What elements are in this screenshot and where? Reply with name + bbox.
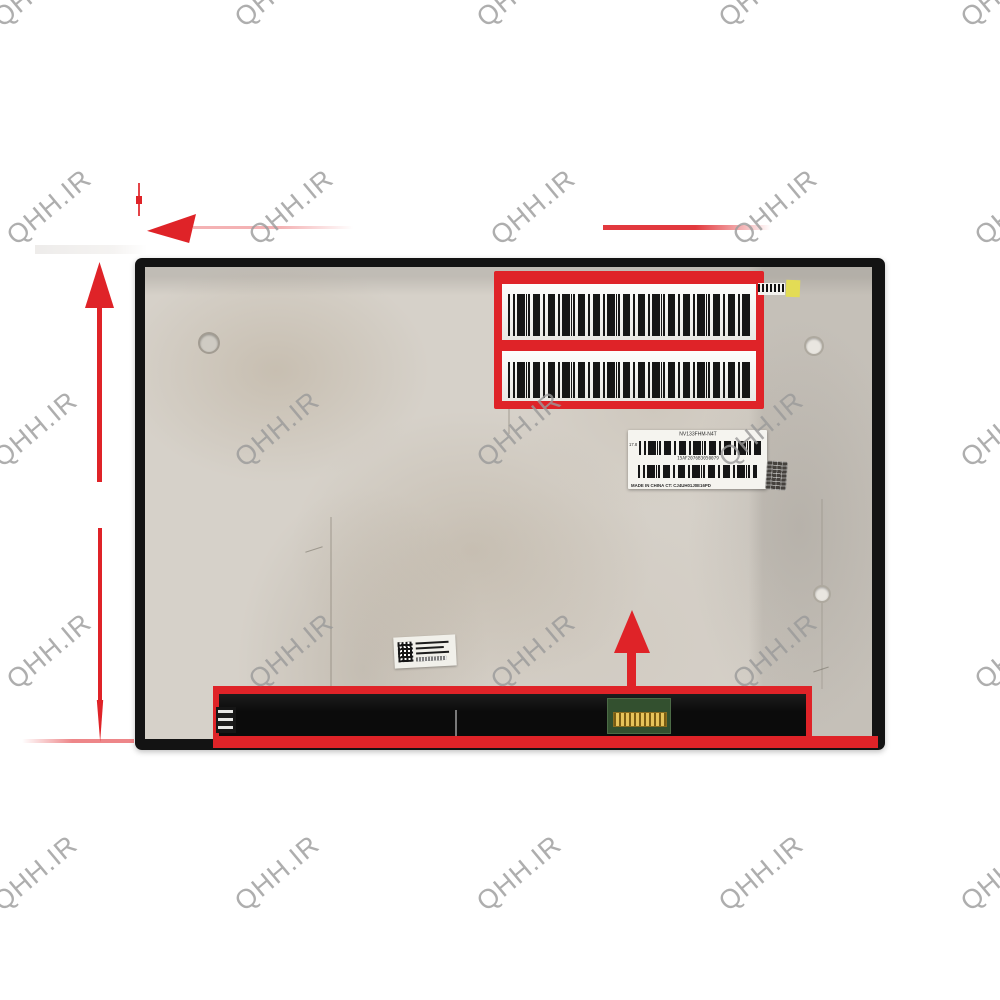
- watermark-text: QHH.IR: [1, 163, 98, 251]
- origin-text: MADE IN CHINA CT: CJ4UH01J0E16PD: [631, 484, 711, 488]
- watermark-text: QHH.IR: [0, 829, 84, 917]
- watermark-text: QHH.IR: [0, 385, 84, 473]
- watermark-text: QHH.IR: [485, 163, 582, 251]
- watermark-text: QHH.IR: [713, 0, 810, 34]
- screw-hole: [813, 585, 831, 603]
- watermark-text: QHH.IR: [0, 0, 84, 34]
- label-print-line: [416, 651, 449, 655]
- barcode-label-strip: [502, 284, 756, 340]
- height-arrow-shaft: [97, 302, 102, 482]
- edp-connector: [613, 712, 667, 727]
- watermark-text: QHH.IR: [229, 0, 326, 34]
- barcode: [639, 441, 762, 455]
- serial-number-text: 15AF2076B3050079: [677, 456, 719, 461]
- corner-mini-barcode: [758, 283, 785, 295]
- watermark-text: QHH.IR: [969, 607, 1000, 695]
- watermark-text: QHH.IR: [713, 829, 810, 917]
- screw-hole: [198, 332, 220, 354]
- watermark-text: QHH.IR: [471, 0, 568, 34]
- label-mini-barcode: [416, 656, 446, 662]
- certification-stamp: [765, 460, 788, 490]
- datamatrix-code: [397, 642, 413, 663]
- watermark-text: QHH.IR: [243, 163, 340, 251]
- surface-crease: [330, 517, 332, 687]
- watermark-text: QHH.IR: [955, 829, 1000, 917]
- label-print-line: [416, 641, 449, 645]
- connector-arrow-shaft: [627, 646, 636, 690]
- connector-pcb: [607, 698, 671, 734]
- barcode: [638, 465, 757, 478]
- panel-info-label: NV133FHM-N4T 17.8 15AF2076B3050079 MADE …: [628, 430, 767, 489]
- watermark-text: QHH.IR: [1, 607, 98, 695]
- height-line-taper: [96, 700, 104, 742]
- size-mark-text: 17.8: [629, 443, 637, 447]
- red-underline-segment: [22, 739, 134, 743]
- watermark-text: QHH.IR: [229, 829, 326, 917]
- pcb-highlight-bottom: [213, 736, 878, 748]
- watermark-text: QHH.IR: [969, 163, 1000, 251]
- barcode-highlight-box: [494, 271, 764, 409]
- watermark-text: QHH.IR: [955, 0, 1000, 34]
- barcode: [508, 362, 750, 398]
- width-tick-dot: [136, 196, 142, 204]
- screw-hole: [804, 336, 824, 356]
- photo-smudge: [35, 245, 147, 254]
- watermark-text: QHH.IR: [955, 385, 1000, 473]
- width-line-faint: [193, 226, 353, 229]
- width-line-segment: [603, 225, 771, 230]
- small-spec-label: [393, 634, 457, 668]
- label-print-line: [416, 646, 444, 649]
- side-connector: [216, 707, 236, 733]
- watermark-text: QHH.IR: [727, 163, 824, 251]
- pcb-cover-strip: [219, 694, 806, 738]
- surface-scratch: [305, 546, 322, 553]
- product-photo: NV133FHM-N4T 17.8 15AF2076B3050079 MADE …: [0, 0, 1000, 1000]
- width-arrow-head-icon: [147, 214, 196, 243]
- watermark-text: QHH.IR: [471, 829, 568, 917]
- barcode-label-strip: [502, 351, 756, 401]
- model-number-text: NV133FHM-N4T: [679, 432, 717, 437]
- strip-seam: [455, 710, 457, 737]
- barcode: [508, 294, 750, 336]
- height-line-lower: [98, 528, 102, 703]
- yellow-sticker: [786, 280, 801, 297]
